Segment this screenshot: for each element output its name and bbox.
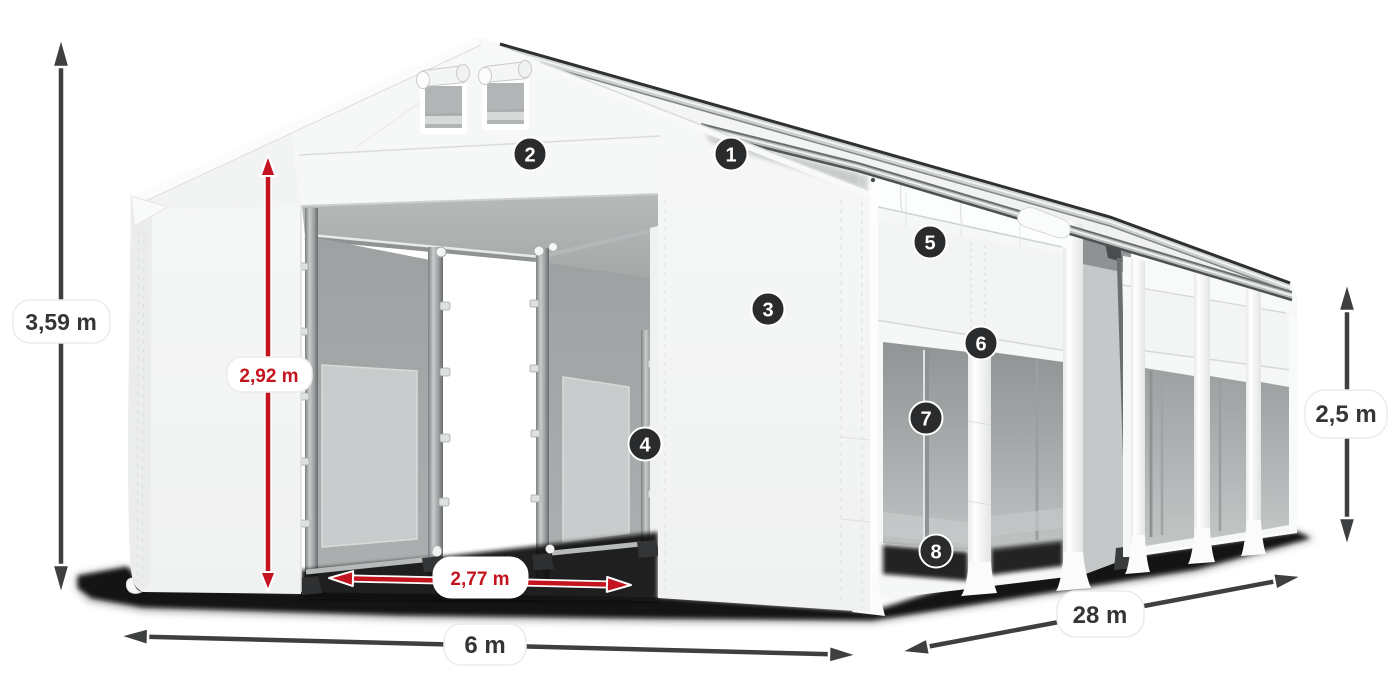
svg-text:1: 1 (725, 145, 736, 167)
svg-text:6 m: 6 m (464, 632, 505, 659)
svg-text:2: 2 (524, 145, 535, 167)
svg-text:28 m: 28 m (1073, 602, 1128, 629)
svg-text:2,77 m: 2,77 m (450, 569, 509, 590)
svg-text:7: 7 (920, 409, 931, 431)
svg-text:4: 4 (639, 435, 651, 457)
svg-text:3,59 m: 3,59 m (25, 309, 97, 335)
svg-text:5: 5 (924, 233, 935, 255)
svg-text:3: 3 (762, 300, 773, 322)
svg-text:2,5 m: 2,5 m (1315, 401, 1376, 428)
svg-text:2,92 m: 2,92 m (239, 366, 298, 387)
svg-text:8: 8 (930, 542, 941, 564)
svg-text:6: 6 (975, 334, 986, 356)
